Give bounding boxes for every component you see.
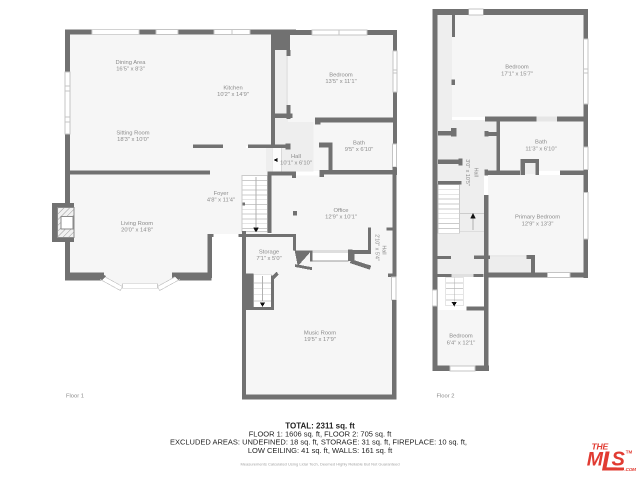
svg-text:16'5" x 8'3": 16'5" x 8'3"	[116, 67, 145, 73]
svg-text:Bedroom: Bedroom	[505, 65, 529, 71]
svg-text:Bath: Bath	[353, 140, 365, 146]
svg-text:13'5" x 11'1": 13'5" x 11'1"	[325, 79, 356, 85]
svg-text:10'1" x 6'10": 10'1" x 6'10"	[280, 161, 312, 167]
svg-text:.COM: .COM	[625, 467, 637, 472]
svg-text:Dining Area: Dining Area	[116, 60, 147, 66]
svg-text:LOW CEILING: 41 sq. ft, WALLS:: LOW CEILING: 41 sq. ft, WALLS: 161 sq. f…	[248, 446, 393, 455]
svg-text:18'3" x 10'0": 18'3" x 10'0"	[117, 137, 149, 143]
svg-text:11'3" x 6'10": 11'3" x 6'10"	[525, 146, 556, 152]
svg-text:12'9" x 13'3": 12'9" x 13'3"	[522, 221, 554, 227]
svg-text:Living Room: Living Room	[121, 221, 153, 227]
svg-text:Hall: Hall	[381, 245, 387, 254]
svg-text:17'1" x 15'7": 17'1" x 15'7"	[501, 72, 533, 78]
svg-text:7'1" x 5'0": 7'1" x 5'0"	[256, 256, 281, 262]
svg-text:9'5" x 6'10": 9'5" x 6'10"	[345, 147, 374, 153]
svg-text:Floor 1: Floor 1	[66, 394, 84, 400]
svg-text:10'2" x 14'9": 10'2" x 14'9"	[217, 92, 249, 98]
svg-text:Kitchen: Kitchen	[223, 85, 242, 91]
svg-text:Hall: Hall	[473, 168, 479, 177]
svg-text:Storage: Storage	[259, 250, 279, 256]
svg-text:Bath: Bath	[535, 140, 547, 146]
svg-text:20'0" x 14'8": 20'0" x 14'8"	[121, 228, 153, 234]
svg-text:Hall: Hall	[291, 154, 301, 160]
svg-text:2'10" x 5'4": 2'10" x 5'4"	[374, 234, 380, 261]
svg-text:Bedroom: Bedroom	[449, 334, 473, 340]
svg-text:12'9" x 10'1": 12'9" x 10'1"	[325, 214, 357, 220]
svg-text:Music Room: Music Room	[304, 331, 336, 337]
svg-text:Floor 2: Floor 2	[436, 394, 454, 400]
svg-text:Foyer: Foyer	[214, 191, 229, 197]
svg-text:6'4" x 12'1": 6'4" x 12'1"	[447, 341, 476, 347]
svg-text:Primary Bedroom: Primary Bedroom	[515, 215, 560, 221]
svg-text:Sitting Room: Sitting Room	[116, 130, 149, 136]
svg-text:3'0" x 10'5": 3'0" x 10'5"	[464, 159, 470, 186]
svg-text:TM: TM	[626, 450, 633, 455]
svg-text:Bedroom: Bedroom	[329, 73, 353, 79]
svg-text:Measurements Calculated Using: Measurements Calculated Using Lidar Tech…	[240, 462, 399, 467]
svg-text:19'5" x 17'9": 19'5" x 17'9"	[304, 337, 336, 343]
svg-text:Office: Office	[333, 208, 348, 214]
svg-text:4'8" x 11'4": 4'8" x 11'4"	[207, 197, 235, 203]
svg-text:S: S	[612, 448, 626, 470]
